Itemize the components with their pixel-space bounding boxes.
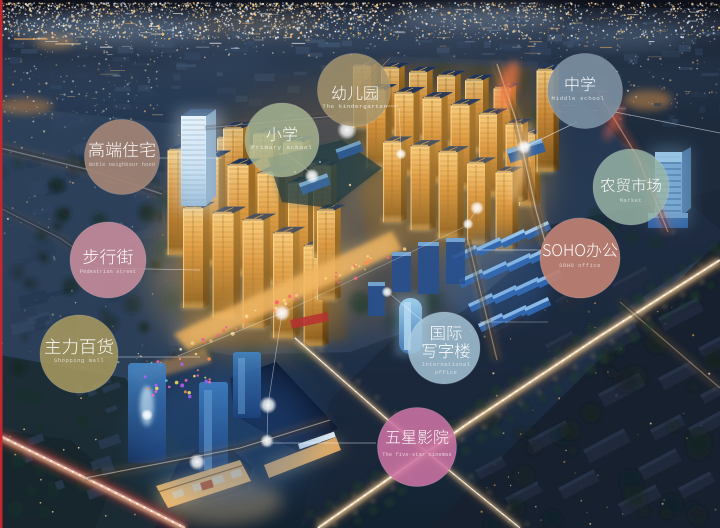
svg-text:Middle school: Middle school xyxy=(551,95,604,102)
svg-text:office: office xyxy=(435,369,458,376)
svg-text:SOHO office: SOHO office xyxy=(559,262,601,269)
svg-text:Pedestrian street: Pedestrian street xyxy=(80,269,136,275)
svg-text:Market: Market xyxy=(620,198,642,204)
svg-text:International: International xyxy=(422,361,471,368)
svg-text:Primary school: Primary school xyxy=(251,144,312,151)
svg-text:The five-star cinemas: The five-star cinemas xyxy=(382,452,452,458)
svg-text:Shopping mall: Shopping mall xyxy=(54,357,104,364)
svg-text:The kindergarten: The kindergarten xyxy=(322,103,387,110)
svg-text:Noble neighbour hood: Noble neighbour hood xyxy=(89,162,155,168)
